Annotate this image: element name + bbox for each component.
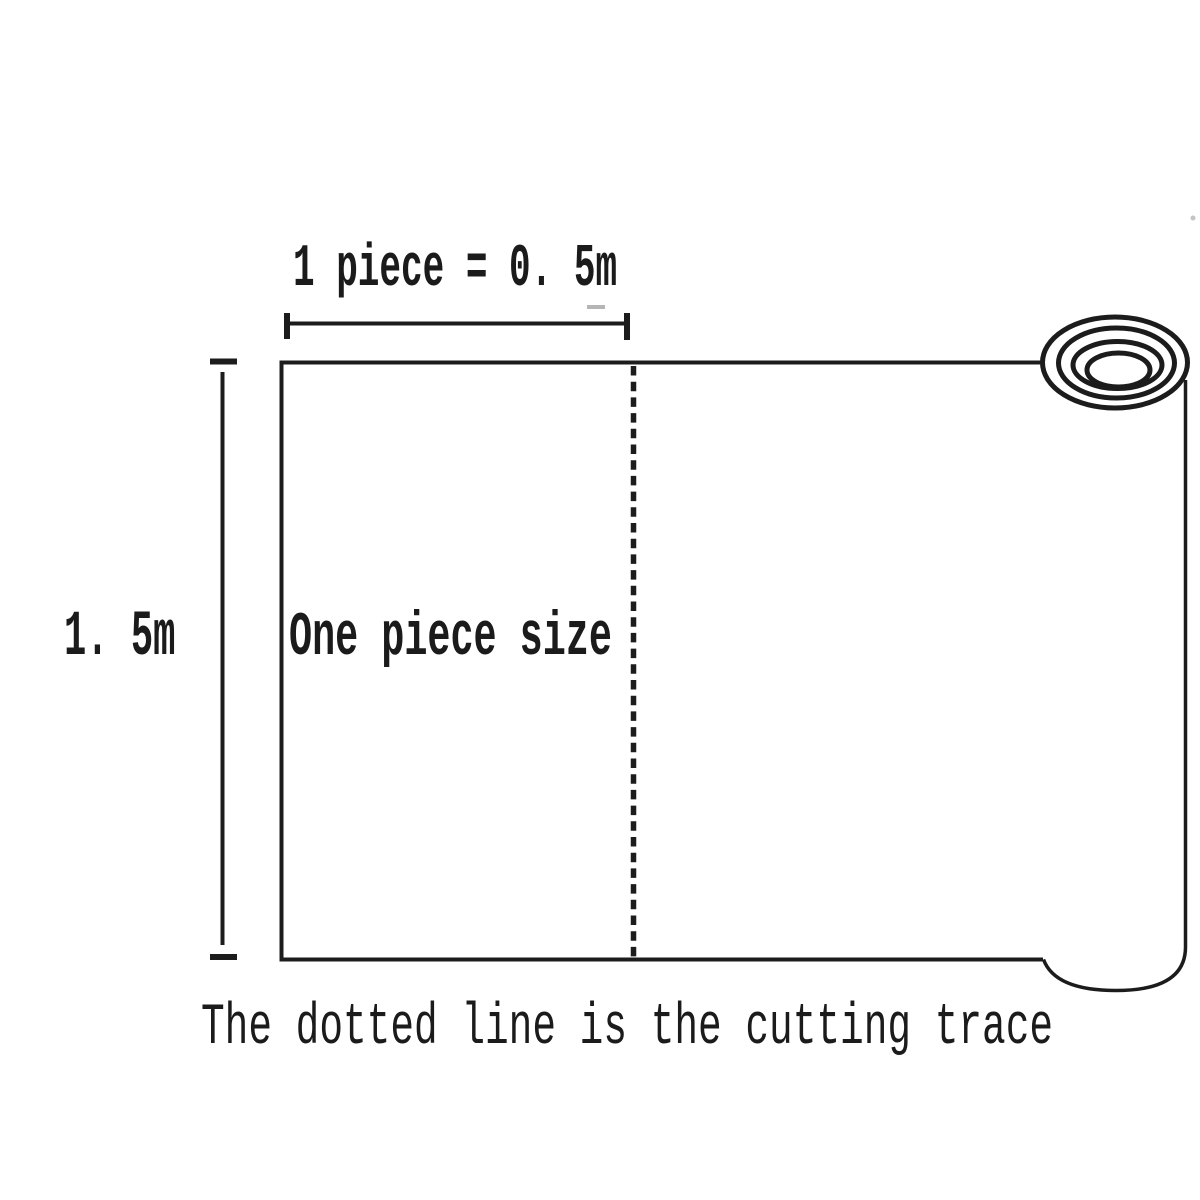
width-dimension-line	[287, 313, 627, 340]
height-dimension-line	[210, 362, 237, 958]
scan-artifact-dot	[1191, 216, 1196, 221]
roll-ring-outer	[1043, 317, 1188, 408]
fabric-roll-icon	[1043, 317, 1188, 408]
one-piece-size-label: One piece size	[289, 607, 612, 669]
roll-ring-inner	[1087, 353, 1150, 387]
cutting-trace-caption: The dotted line is the cutting trace	[201, 1000, 1053, 1058]
height-dimension-label: 1. 5m	[64, 606, 175, 670]
roll-cutting-diagram: 1 piece = 0. 5m 1. 5m One piece size The…	[0, 0, 1200, 1200]
roll-hanging-edge	[1044, 380, 1186, 991]
top-dimension-label: 1 piece = 0. 5m	[293, 240, 617, 300]
